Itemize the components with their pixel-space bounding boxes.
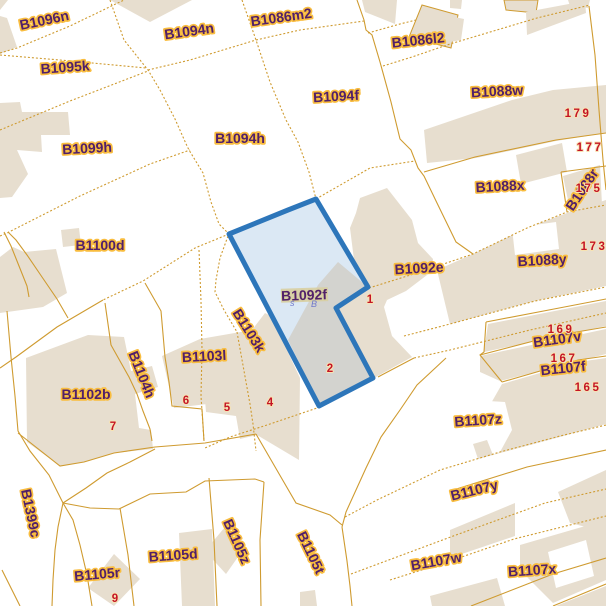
svg-text:165: 165: [575, 382, 602, 394]
svg-text:B1092e: B1092e: [394, 259, 444, 278]
svg-text:B1088x: B1088x: [475, 177, 525, 196]
svg-text:B1088y: B1088y: [517, 251, 567, 270]
svg-text:173: 173: [581, 241, 606, 253]
svg-text:167: 167: [551, 353, 578, 365]
svg-text:B1088w: B1088w: [471, 82, 524, 101]
svg-text:4: 4: [267, 397, 274, 409]
svg-text:1: 1: [367, 294, 374, 306]
svg-text:5: 5: [224, 402, 231, 414]
svg-text:B1094h: B1094h: [215, 130, 265, 146]
svg-text:9: 9: [112, 593, 118, 605]
svg-text:B1094f: B1094f: [313, 87, 360, 105]
svg-text:B1095k: B1095k: [40, 57, 90, 76]
svg-text:6: 6: [183, 395, 189, 407]
svg-text:177: 177: [577, 142, 604, 154]
svg-text:175: 175: [576, 183, 603, 195]
svg-text:B1100d: B1100d: [75, 237, 124, 253]
svg-text:B1102b: B1102b: [61, 386, 110, 402]
svg-text:B1099h: B1099h: [62, 139, 113, 158]
svg-text:s: s: [290, 298, 295, 308]
svg-text:2: 2: [327, 363, 333, 375]
svg-text:B: B: [311, 299, 317, 309]
svg-text:B1107x: B1107x: [507, 560, 556, 579]
svg-text:169: 169: [548, 324, 575, 336]
svg-text:B1092f: B1092f: [281, 286, 328, 304]
svg-text:B1107z: B1107z: [454, 410, 502, 429]
svg-text:7: 7: [110, 421, 116, 433]
svg-text:B1105d: B1105d: [148, 545, 198, 564]
svg-text:179: 179: [565, 108, 592, 120]
svg-text:B1103l: B1103l: [181, 347, 226, 365]
